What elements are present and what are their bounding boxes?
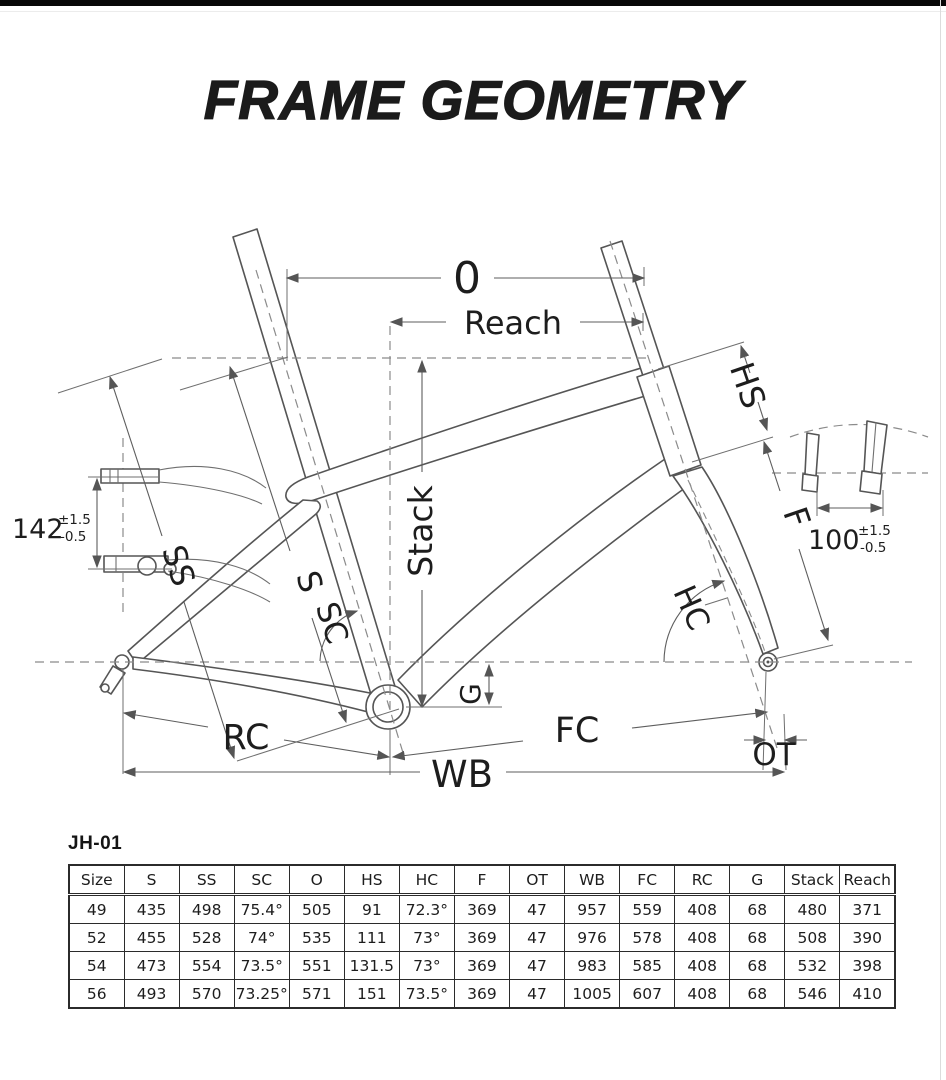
- rear-spacing-tol-bottom: -0.5: [60, 529, 86, 545]
- table-cell: 528: [179, 924, 234, 952]
- table-cell: 371: [840, 895, 895, 924]
- table-cell: 532: [785, 952, 840, 980]
- frame-geometry-diagram: 142 ±1.5 -0.5 100 ±1.5 -0.5: [0, 200, 946, 850]
- table-cell: 369: [454, 952, 509, 980]
- table-cell: 111: [344, 924, 399, 952]
- label-s: S: [288, 566, 330, 597]
- table-cell: 408: [675, 924, 730, 952]
- label-rc: RC: [222, 718, 269, 758]
- column-header: OT: [510, 865, 565, 895]
- table-cell: 47: [510, 895, 565, 924]
- table-cell: 72.3°: [399, 895, 454, 924]
- table-cell: 398: [840, 952, 895, 980]
- column-header: S: [124, 865, 179, 895]
- table-row: 5245552874°53511173°36947976578408685083…: [69, 924, 895, 952]
- rear-spacing-tol-top: ±1.5: [58, 512, 91, 528]
- table-cell: 68: [730, 952, 785, 980]
- label-stack: Stack: [401, 484, 440, 576]
- header-row: SizeSSSSCOHSHCFOTWBFCRCGStackReach: [69, 865, 895, 895]
- table-cell: 1005: [565, 980, 620, 1009]
- table-cell: 68: [730, 924, 785, 952]
- table-cell: 369: [454, 895, 509, 924]
- table-cell: 47: [510, 924, 565, 952]
- table-cell: 68: [730, 980, 785, 1009]
- table-cell: 473: [124, 952, 179, 980]
- rear-hub-detail: 142 ±1.5 -0.5: [12, 438, 270, 618]
- table-cell: 551: [289, 952, 344, 980]
- column-header: G: [730, 865, 785, 895]
- scan-hairline: [0, 11, 946, 12]
- column-header: FC: [620, 865, 675, 895]
- column-header: F: [454, 865, 509, 895]
- label-ot: OT: [752, 737, 796, 773]
- column-header: RC: [675, 865, 730, 895]
- table-cell: 983: [565, 952, 620, 980]
- table-row: 5447355473.5°551131.573°3694798358540868…: [69, 952, 895, 980]
- table-cell: 554: [179, 952, 234, 980]
- table-cell: 585: [620, 952, 675, 980]
- table-cell: 607: [620, 980, 675, 1009]
- table-cell: 68: [730, 895, 785, 924]
- table-cell: 74°: [234, 924, 289, 952]
- column-header: SC: [234, 865, 289, 895]
- table-cell: 73°: [399, 952, 454, 980]
- column-header: O: [289, 865, 344, 895]
- table-cell: 410: [840, 980, 895, 1009]
- front-spacing-value: 100: [808, 525, 860, 556]
- table-row: 5649357073.25°57115173.5°369471005607408…: [69, 980, 895, 1009]
- table-cell: 408: [675, 895, 730, 924]
- front-spacing-tol-bottom: -0.5: [860, 540, 886, 556]
- table-cell: 151: [344, 980, 399, 1009]
- table-cell: 54: [69, 952, 124, 980]
- table-cell: 73.25°: [234, 980, 289, 1009]
- table-cell: 435: [124, 895, 179, 924]
- label-g: G: [454, 683, 487, 705]
- front-hub-detail: 100 ±1.5 -0.5: [772, 421, 928, 556]
- table-cell: 508: [785, 924, 840, 952]
- table-cell: 75.4°: [234, 895, 289, 924]
- column-header: Size: [69, 865, 124, 895]
- table-cell: 535: [289, 924, 344, 952]
- table-cell: 131.5: [344, 952, 399, 980]
- table-cell: 49: [69, 895, 124, 924]
- table-cell: 408: [675, 952, 730, 980]
- model-label: JH-01: [68, 833, 122, 855]
- geometry-table-head: SizeSSSSCOHSHCFOTWBFCRCGStackReach: [69, 865, 895, 895]
- label-o: 0: [453, 253, 481, 304]
- column-header: HS: [344, 865, 399, 895]
- table-cell: 56: [69, 980, 124, 1009]
- table-cell: 559: [620, 895, 675, 924]
- table-cell: 52: [69, 924, 124, 952]
- table-row: 4943549875.4°5059172.3°36947957559408684…: [69, 895, 895, 924]
- scan-top-bar: [0, 0, 946, 6]
- table-cell: 91: [344, 895, 399, 924]
- table-cell: 73.5°: [234, 952, 289, 980]
- front-spacing-tol-top: ±1.5: [858, 523, 891, 539]
- table-cell: 570: [179, 980, 234, 1009]
- table-cell: 455: [124, 924, 179, 952]
- table-cell: 976: [565, 924, 620, 952]
- table-cell: 480: [785, 895, 840, 924]
- table-cell: 505: [289, 895, 344, 924]
- column-header: SS: [179, 865, 234, 895]
- table-cell: 546: [785, 980, 840, 1009]
- column-header: Reach: [840, 865, 895, 895]
- label-reach: Reach: [464, 304, 562, 342]
- label-ss: SS: [154, 540, 203, 590]
- table-cell: 369: [454, 924, 509, 952]
- bike-frame-drawing: [100, 229, 778, 729]
- column-header: Stack: [785, 865, 840, 895]
- geometry-table-body: 4943549875.4°5059172.3°36947957559408684…: [69, 895, 895, 1009]
- page-title: FRAME GEOMETRY: [0, 68, 946, 132]
- table-cell: 73°: [399, 924, 454, 952]
- label-wb: WB: [431, 753, 493, 796]
- column-header: HC: [399, 865, 454, 895]
- table-cell: 408: [675, 980, 730, 1009]
- column-header: WB: [565, 865, 620, 895]
- table-cell: 571: [289, 980, 344, 1009]
- table-cell: 47: [510, 980, 565, 1009]
- label-fc: FC: [555, 711, 600, 751]
- label-hs: HS: [722, 357, 774, 413]
- table-cell: 73.5°: [399, 980, 454, 1009]
- table-cell: 498: [179, 895, 234, 924]
- diagram-svg: 142 ±1.5 -0.5 100 ±1.5 -0.5: [0, 200, 946, 850]
- frame-geometry-sheet: { "page": { "title": "FRAME GEOMETRY", "…: [0, 0, 946, 1080]
- geometry-table: SizeSSSSCOHSHCFOTWBFCRCGStackReach 49435…: [68, 864, 896, 1009]
- table-cell: 369: [454, 980, 509, 1009]
- rear-spacing-value: 142: [12, 514, 64, 545]
- label-hc: HC: [666, 580, 717, 636]
- table-cell: 957: [565, 895, 620, 924]
- table-cell: 493: [124, 980, 179, 1009]
- table-cell: 47: [510, 952, 565, 980]
- table-cell: 578: [620, 924, 675, 952]
- table-cell: 390: [840, 924, 895, 952]
